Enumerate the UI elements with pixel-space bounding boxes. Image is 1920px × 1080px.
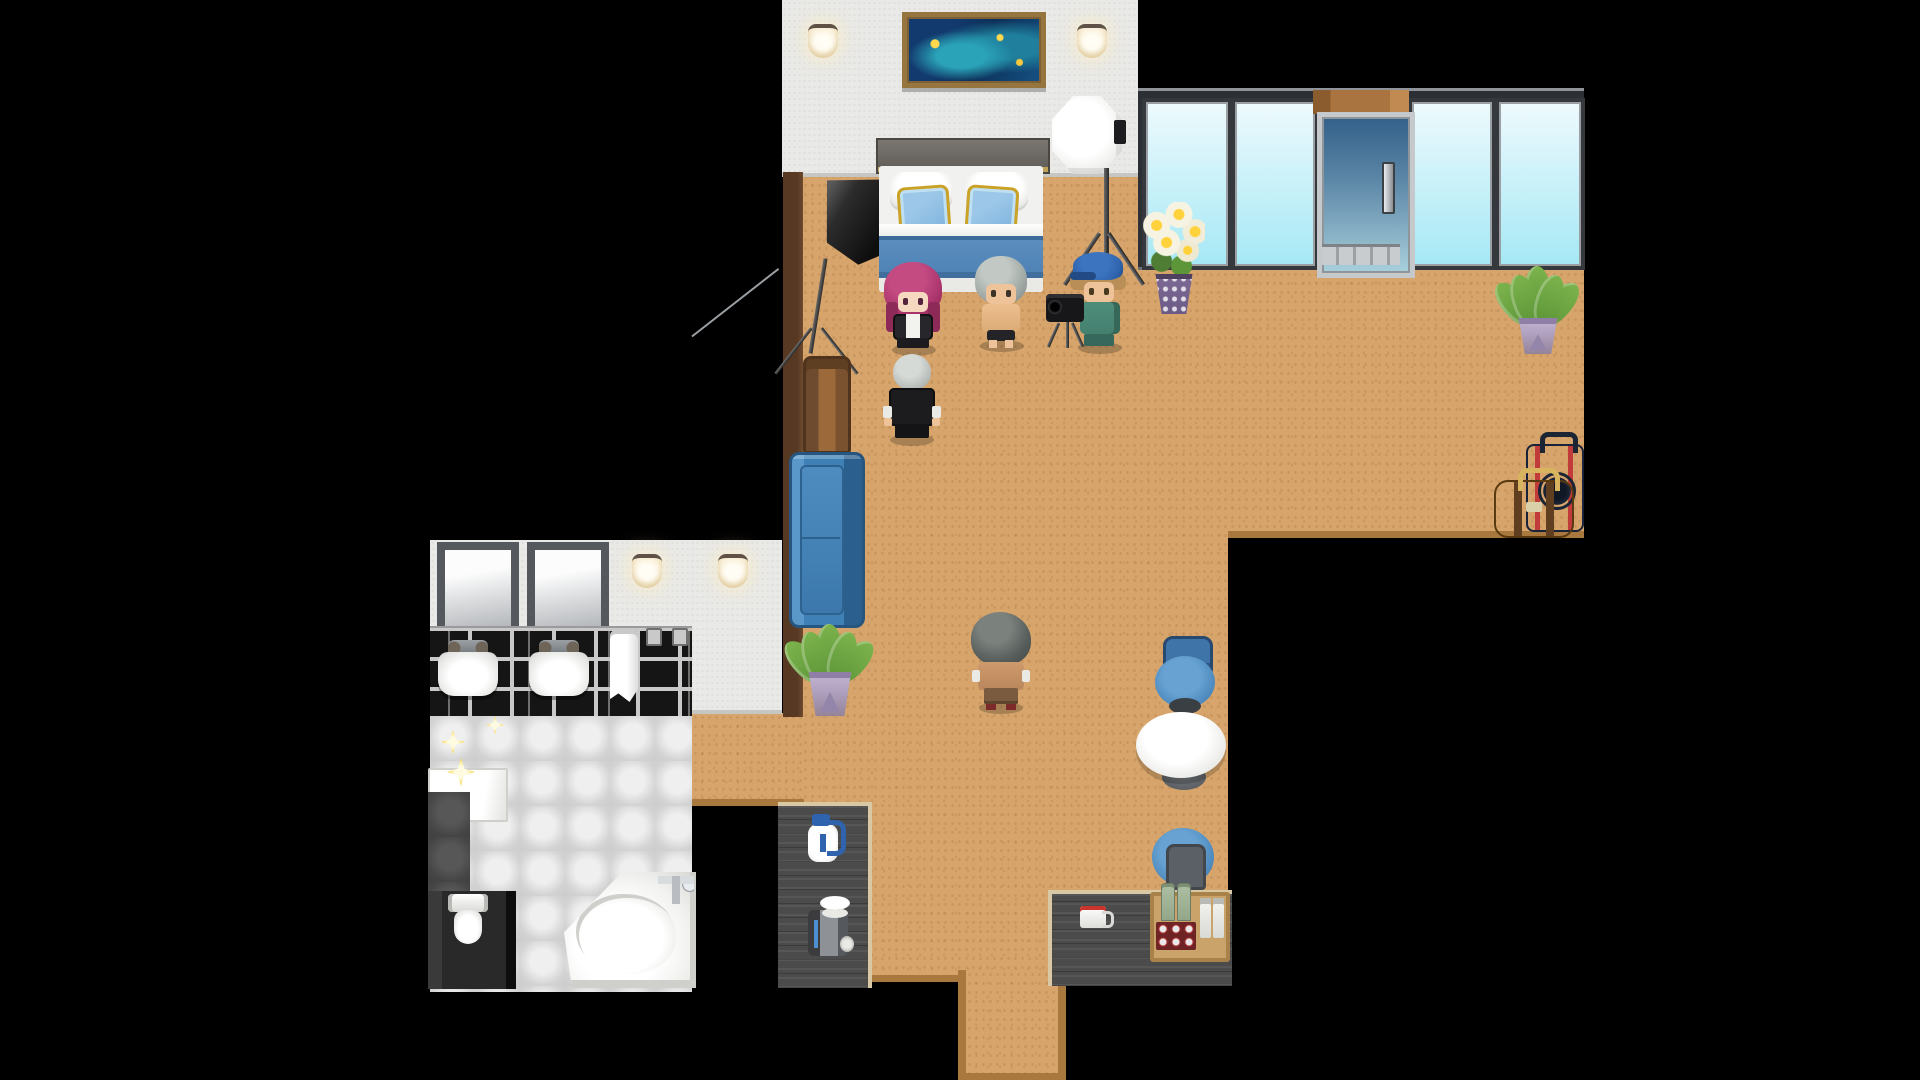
dark-tile-strip (428, 792, 470, 896)
toilet[interactable] (448, 894, 488, 946)
door-lintel (1313, 90, 1409, 114)
wall-hook (646, 628, 662, 646)
bathroom-sink[interactable] (436, 636, 500, 698)
stall-partition (506, 891, 516, 989)
bathroom-wall-east (690, 626, 782, 714)
coffee-mug[interactable] (1080, 906, 1106, 928)
hand-towel[interactable] (610, 630, 638, 702)
plant-pot (1516, 318, 1560, 354)
duffel-clasp (1526, 502, 1542, 512)
door-handle[interactable] (1382, 162, 1395, 214)
camera-lens (1048, 300, 1062, 314)
character-man-gray-shaggy[interactable] (970, 612, 1032, 712)
green-bottle (1178, 884, 1190, 920)
bottle-crate (1156, 922, 1196, 950)
window-pane (1231, 98, 1319, 270)
wall-lamp-icon (718, 554, 748, 588)
character-photographer-blue-cap[interactable] (1068, 252, 1132, 352)
suitcase-handle (1540, 432, 1578, 453)
sofa-cushion (800, 465, 844, 615)
light-stand-brace (691, 268, 779, 337)
game-viewport (0, 0, 1920, 1080)
potted-plant[interactable] (790, 624, 870, 718)
coffee-machine[interactable] (806, 896, 854, 958)
hallway-floor (692, 713, 804, 806)
duffel-handle (1518, 468, 1560, 491)
wall-hook (672, 628, 688, 646)
character-man-silver-shirtless[interactable] (972, 254, 1032, 350)
water-jug[interactable] (806, 812, 846, 864)
plant-pot (806, 672, 854, 716)
softbox-mount (1114, 120, 1126, 144)
minibar-tray[interactable] (1150, 892, 1230, 962)
bathtub-faucet (658, 876, 694, 904)
wall-lamp-icon (632, 554, 662, 588)
green-bottle (1162, 884, 1174, 920)
blue-sofa[interactable] (789, 452, 865, 628)
brown-duffel-bag[interactable] (1494, 480, 1574, 538)
milk-carton (1200, 898, 1211, 938)
blue-chair-north[interactable] (1155, 636, 1215, 714)
milk-carton (1213, 898, 1224, 938)
character-woman-magenta-hair[interactable] (884, 258, 944, 354)
camera-tripod-leg (1066, 322, 1069, 348)
round-table[interactable] (1136, 712, 1226, 778)
painting-art (909, 19, 1039, 81)
wall-lamp-icon (1077, 24, 1107, 58)
sofa-seam (800, 537, 840, 539)
leather-backpack[interactable] (803, 356, 851, 454)
character-man-bald-suit[interactable] (884, 352, 940, 444)
potted-plant[interactable] (1500, 266, 1576, 356)
lily-bouquet[interactable] (1143, 202, 1205, 280)
wall-lamp-icon (808, 24, 838, 58)
south-exit-floor (958, 970, 1066, 1080)
window-pane (1408, 98, 1496, 270)
window-pane (1495, 98, 1585, 270)
bathroom-sink[interactable] (527, 636, 591, 698)
door-sill (1322, 244, 1400, 265)
aquarium-painting[interactable] (902, 12, 1046, 88)
